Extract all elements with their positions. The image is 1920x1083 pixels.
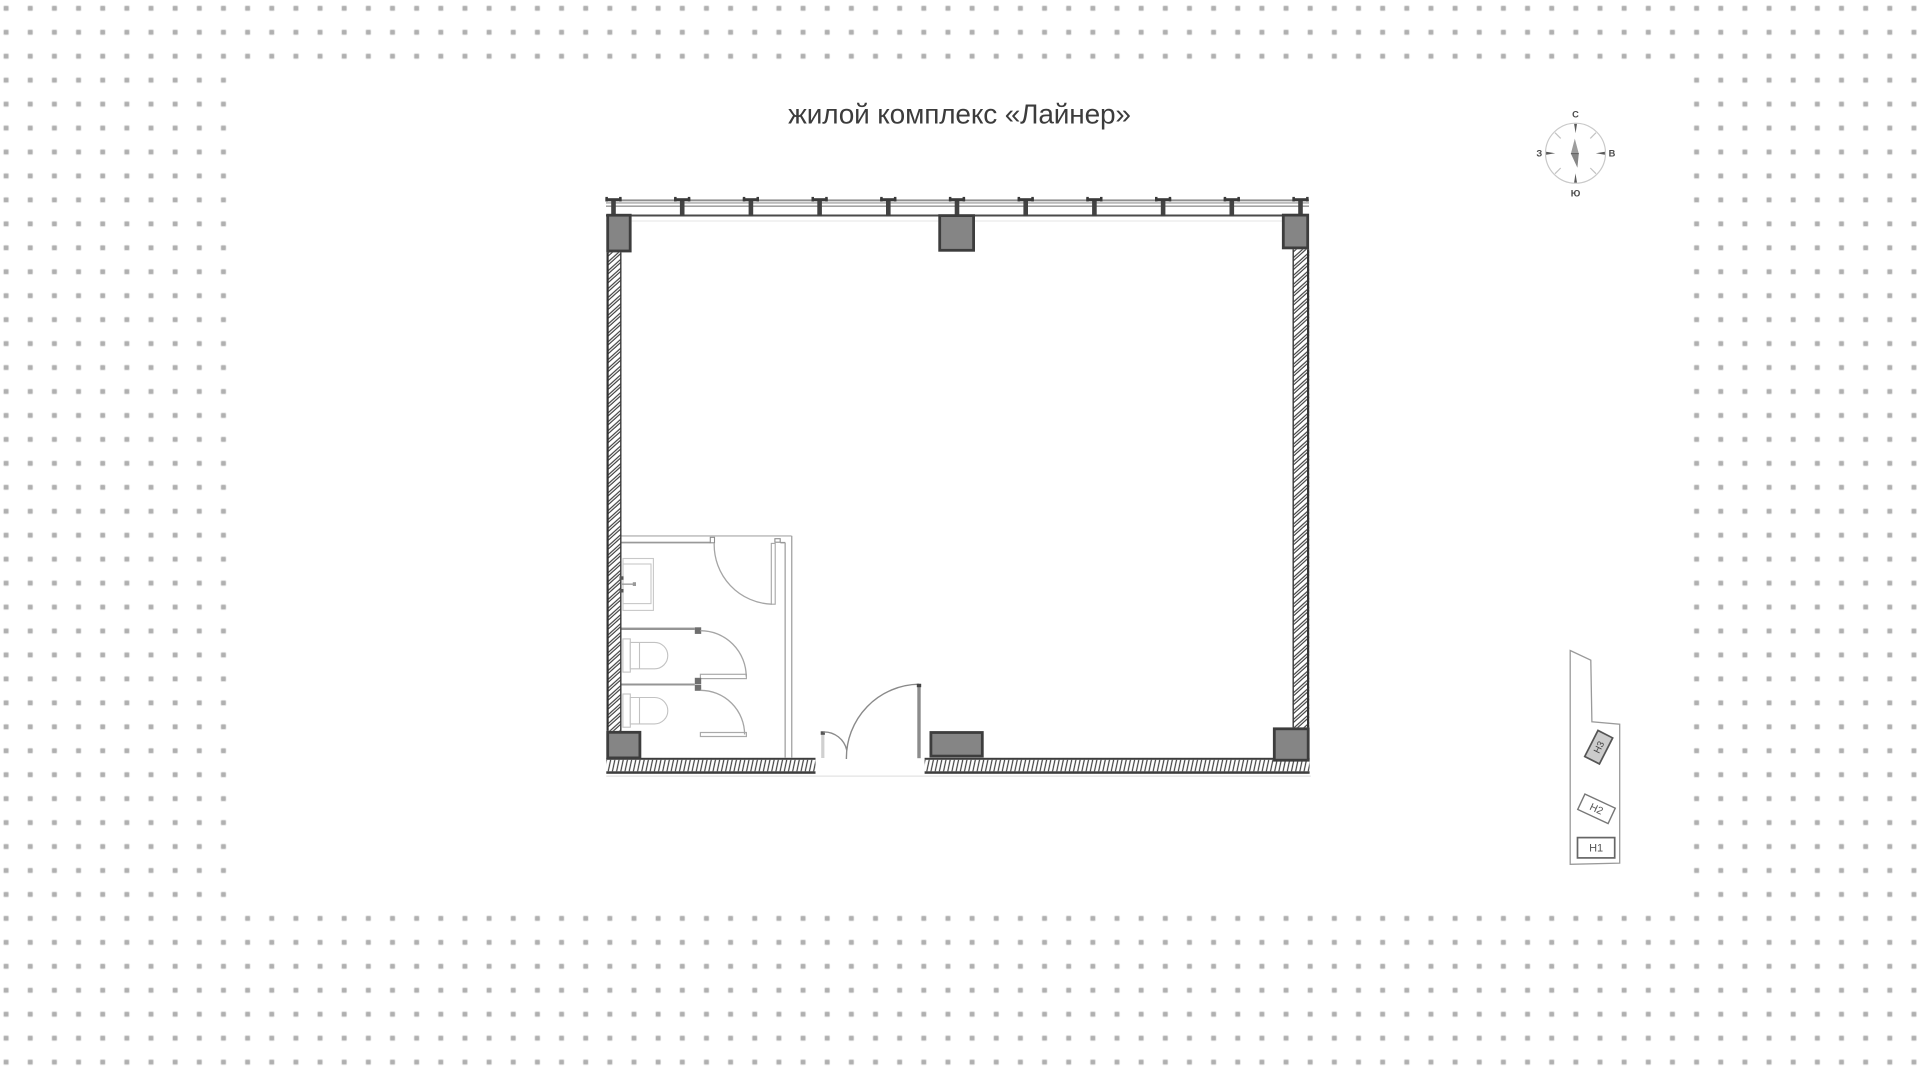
svg-text:жилой комплекс «Лайнер»: жилой комплекс «Лайнер» bbox=[788, 98, 1131, 129]
svg-text:В: В bbox=[1609, 149, 1616, 159]
svg-text:Ю: Ю bbox=[1571, 189, 1581, 199]
svg-text:З: З bbox=[1536, 149, 1542, 159]
svg-text:Н1: Н1 bbox=[1589, 843, 1603, 855]
svg-text:С: С bbox=[1572, 109, 1579, 119]
